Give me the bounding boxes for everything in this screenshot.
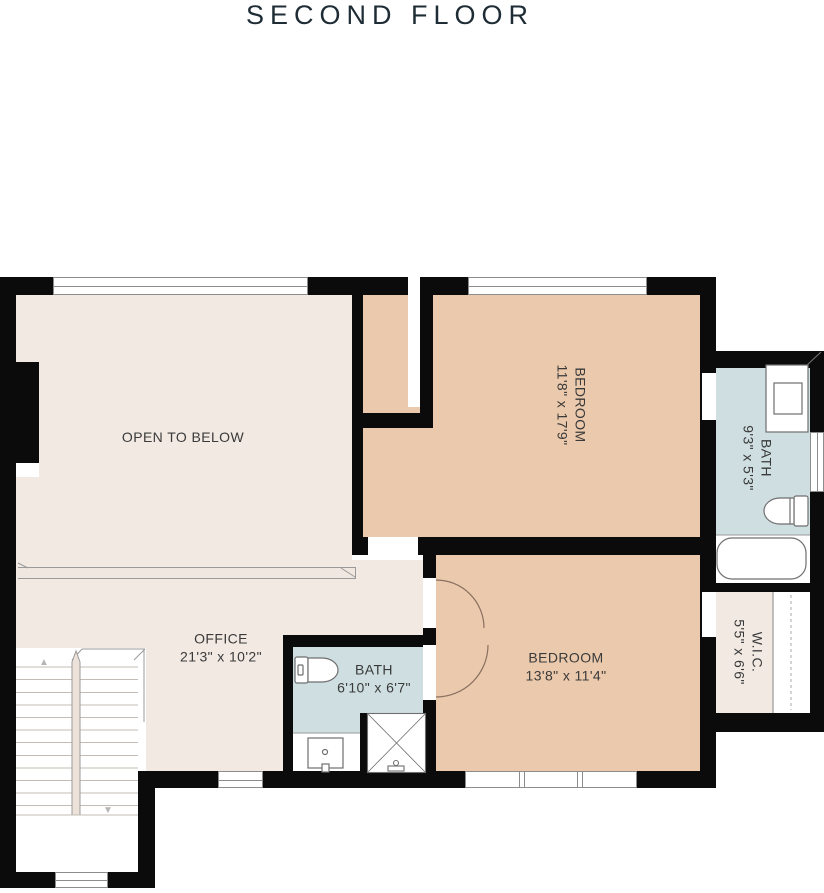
- room-label-wic: W.I.C. 5'5" x 6'6": [730, 619, 767, 685]
- window: [53, 277, 308, 295]
- window: [468, 277, 647, 295]
- wall: [708, 351, 824, 368]
- room-label-bedroom-bottom: BEDROOM 13'8" x 11'4": [526, 649, 607, 686]
- window-divider: [577, 772, 583, 787]
- wall: [0, 362, 39, 463]
- door-opening-bath-right: [702, 373, 716, 420]
- room-label-bath-middle: BATH 6'10" x 6'7": [337, 661, 411, 698]
- wall: [363, 413, 433, 428]
- wall: [420, 277, 433, 413]
- stairs-down-arrow-icon: ▼: [103, 806, 113, 816]
- room-name: OPEN TO BELOW: [122, 428, 244, 446]
- room-name: W.I.C.: [748, 632, 766, 673]
- room-label-open-to-below: OPEN TO BELOW: [122, 428, 244, 446]
- door-opening-bedroom-top: [368, 537, 418, 555]
- wall-notch: [16, 463, 39, 477]
- railing: [18, 567, 356, 579]
- wall: [360, 713, 367, 773]
- stairs-left-flight: [16, 655, 72, 815]
- bath-right-tub-area: [716, 535, 810, 583]
- room-dims: 21'3" x 10'2": [180, 648, 262, 666]
- room-label-bath-right: BATH 9'3" x 5'3": [739, 425, 776, 491]
- bath-middle-sink-alcove: [293, 733, 360, 773]
- window-divider: [519, 772, 525, 787]
- room-dims: 11'8" x 17'9": [553, 365, 571, 446]
- room-dims: 13'8" x 11'4": [526, 667, 607, 685]
- window-triple: [465, 771, 637, 788]
- floor-plan: SECOND FLOOR: [0, 0, 824, 893]
- room-name: BATH: [355, 661, 393, 679]
- closet-opening: [408, 277, 420, 407]
- room-dims: 6'10" x 6'7": [337, 679, 411, 697]
- wall: [283, 635, 293, 773]
- room-dims: 9'3" x 5'3": [739, 425, 757, 491]
- stairs-up-arrow-icon: ▲: [39, 658, 49, 668]
- wall: [138, 773, 155, 888]
- room-dims: 5'5" x 6'6": [730, 619, 748, 685]
- wall: [352, 277, 363, 537]
- door-opening-bath-middle: [423, 645, 436, 700]
- wall: [283, 635, 436, 647]
- room-name: BEDROOM: [528, 649, 603, 667]
- wall: [716, 583, 810, 592]
- stairs-right-flight: [80, 655, 138, 815]
- room-name: BATH: [757, 439, 775, 477]
- page-title: SECOND FLOOR: [0, 0, 802, 31]
- window: [810, 432, 824, 492]
- wall: [810, 351, 824, 732]
- window: [55, 872, 108, 888]
- wall: [716, 713, 824, 732]
- room-label-office: OFFICE 21'3" x 10'2": [180, 630, 262, 667]
- room-name: BEDROOM: [571, 367, 589, 442]
- room-name: OFFICE: [194, 630, 248, 648]
- window: [218, 771, 263, 788]
- door-opening-bedroom-bottom: [423, 578, 436, 628]
- room-label-bedroom-top: BEDROOM 11'8" x 17'9": [553, 365, 590, 446]
- door-opening-wic: [702, 592, 716, 637]
- wic-shelf-strip: [773, 592, 810, 713]
